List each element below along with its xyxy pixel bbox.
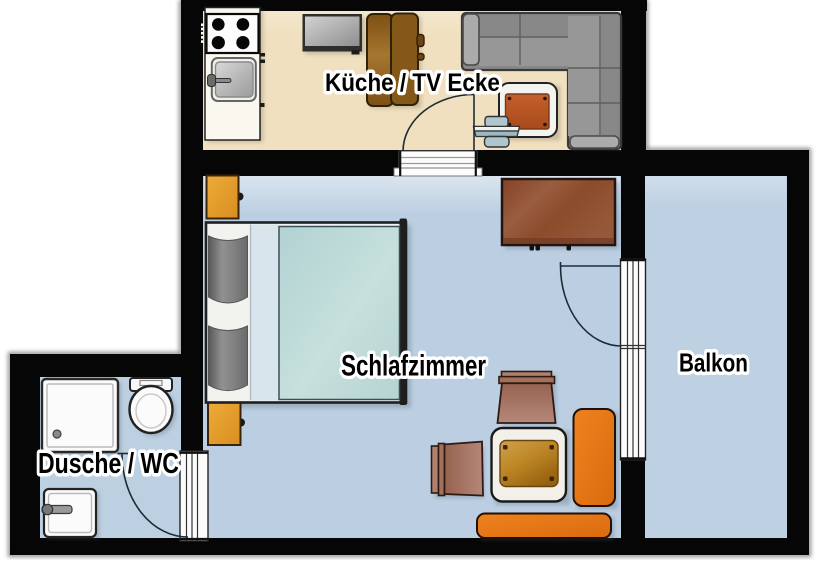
svg-text:Dusche / WC: Dusche / WC (38, 446, 179, 479)
svg-text:Küche / TV Ecke: Küche / TV Ecke (325, 69, 500, 97)
svg-text:Balkon: Balkon (679, 348, 748, 377)
svg-text:Schlafzimmer: Schlafzimmer (341, 348, 486, 382)
